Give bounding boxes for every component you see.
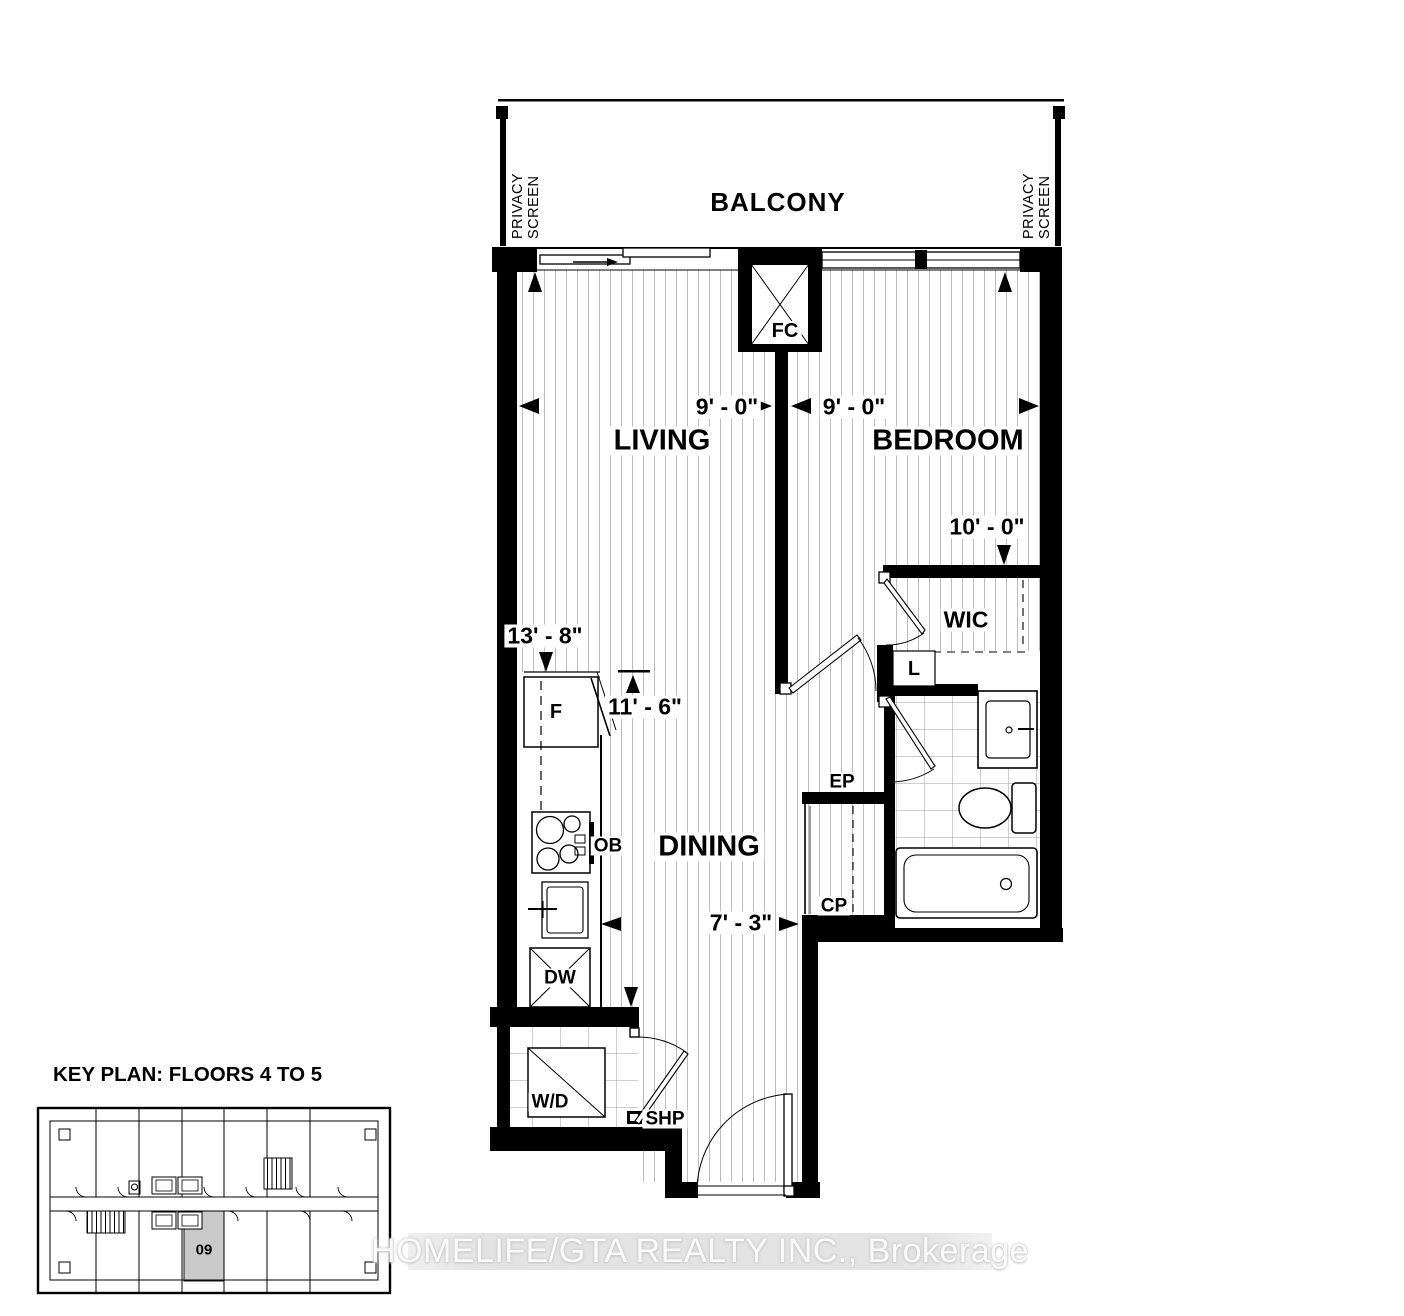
dim-dining-length: 11' - 6": [605, 696, 685, 719]
floorplan-drawing: [0, 0, 1404, 1316]
living-room-label: LIVING: [610, 427, 715, 456]
washer-dryer-label: W/D: [529, 1093, 572, 1112]
balcony-slider-panel: [623, 248, 710, 257]
toilet: [959, 788, 1011, 828]
dishwasher-label: DW: [541, 969, 579, 988]
electrical-panel-label: EP: [826, 773, 857, 792]
entry-door: [784, 1094, 792, 1191]
bathtub: [896, 848, 1037, 918]
stair-shaft: [264, 1158, 292, 1189]
oven-below-label: OB: [591, 837, 626, 856]
key-plan: [38, 1108, 390, 1293]
dining-label: DINING: [654, 833, 764, 862]
linen-label: L: [905, 659, 923, 679]
brokerage-watermark: HOMELIFE/GTA REALTY INC., Brokerage: [408, 1233, 992, 1270]
dim-bedroom-depth: 10' - 0": [946, 516, 1027, 539]
balcony-structure: [496, 99, 1065, 246]
stair-shaft: [87, 1211, 125, 1233]
dim-living-depth: 13' - 8": [504, 625, 585, 648]
brokerage-watermark-text: HOMELIFE/GTA REALTY INC., Brokerage: [371, 1232, 1029, 1271]
privacy-screen-left-label: PRIVACY SCREEN: [510, 157, 542, 239]
key-plan-title: KEY PLAN: FLOORS 4 TO 5: [53, 1065, 322, 1086]
shelf-label: SHP: [642, 1110, 687, 1129]
fridge-label: F: [547, 702, 565, 722]
floorplan-page: BALCONY PRIVACY SCREEN PRIVACY SCREEN LI…: [0, 0, 1404, 1316]
wic-label: WIC: [941, 609, 992, 632]
coat-closet-label: CP: [818, 897, 850, 916]
balcony-label: BALCONY: [710, 189, 846, 215]
dim-living-width: 9' - 0": [693, 396, 761, 419]
fan-coil-label: FC: [769, 321, 802, 341]
dim-hall-width: 7' - 3": [707, 912, 775, 935]
privacy-screen-right-label: PRIVACY SCREEN: [1021, 157, 1053, 239]
dim-bedroom-width: 9' - 0": [820, 396, 888, 419]
key-plan-unit-number: 09: [196, 1243, 213, 1258]
bedroom-label: BEDROOM: [868, 427, 1027, 456]
